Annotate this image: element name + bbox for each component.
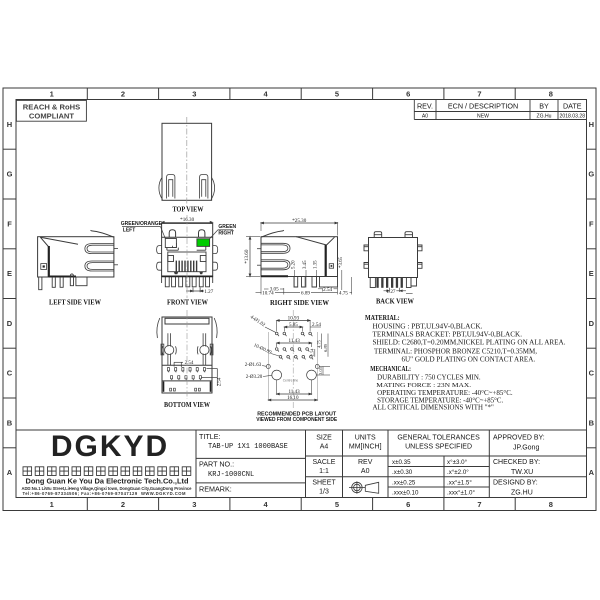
svg-text:.xx°±1.5°: .xx°±1.5° — [447, 480, 472, 487]
svg-text:x°±3.0°: x°±3.0° — [447, 459, 468, 466]
svg-text:2.54: 2.54 — [185, 361, 194, 366]
svg-text:ZG.HU: ZG.HU — [511, 490, 533, 497]
svg-text:2-Ø1.63: 2-Ø1.63 — [245, 363, 262, 368]
svg-text:3: 3 — [192, 89, 196, 98]
svg-text:11.43: 11.43 — [288, 389, 300, 395]
svg-text:16.10: 16.10 — [287, 395, 299, 401]
svg-text:RIGHT SIDE VIEW: RIGHT SIDE VIEW — [270, 298, 330, 307]
svg-text:A: A — [589, 468, 595, 477]
svg-text:NEW: NEW — [477, 113, 489, 119]
svg-text:TERMINAL: PHOSPHOR BRONZE C521: TERMINAL: PHOSPHOR BRONZE C5210,T=0.35MM… — [374, 349, 537, 356]
svg-text:5.20: 5.20 — [291, 260, 296, 269]
svg-text:DESIGND BY:: DESIGND BY: — [493, 480, 538, 487]
svg-text:6: 6 — [406, 500, 410, 509]
svg-text:Dong Guan Ke You Da Electronic: Dong Guan Ke You Da Electronic Tech.Co.,… — [26, 477, 189, 486]
svg-text:REV: REV — [358, 459, 373, 466]
svg-text:TITLE:: TITLE: — [199, 432, 221, 441]
svg-text:1:1: 1:1 — [319, 468, 329, 475]
svg-text:GREEN/ORANGE: GREEN/ORANGE — [121, 221, 163, 227]
svg-text:MECHANICAL:: MECHANICAL: — [370, 365, 411, 373]
svg-text:.xxx±0.10: .xxx±0.10 — [392, 490, 419, 497]
svg-text:ECN / DESCRIPTION: ECN / DESCRIPTION — [448, 102, 518, 111]
svg-text:Tel:+86-0769-87334506; Fax:+86: Tel:+86-0769-87334506; Fax:+86-0769-8704… — [23, 491, 187, 496]
svg-text:G: G — [588, 170, 594, 179]
svg-text:DGKYD: DGKYD — [51, 430, 169, 463]
svg-text:.xx±0.25: .xx±0.25 — [392, 480, 416, 487]
svg-text:*3.65: *3.65 — [339, 256, 344, 268]
svg-text:TOP VIEW: TOP VIEW — [173, 204, 205, 213]
svg-text:1: 1 — [50, 500, 54, 509]
svg-text:1.35: 1.35 — [314, 260, 319, 269]
svg-text:PART NO.:: PART NO.: — [199, 460, 234, 469]
svg-text:BACK VIEW: BACK VIEW — [376, 297, 415, 306]
svg-text:H: H — [7, 120, 12, 129]
svg-text:*25.30: *25.30 — [292, 218, 306, 224]
svg-text:G: G — [7, 170, 13, 179]
svg-text:F: F — [589, 220, 594, 229]
svg-text:1.27: 1.27 — [204, 289, 213, 295]
svg-text:SIZE: SIZE — [316, 435, 332, 442]
svg-text:SACLE: SACLE — [313, 459, 336, 466]
svg-text:8: 8 — [549, 500, 553, 509]
svg-text:x±0.35: x±0.35 — [392, 459, 411, 466]
svg-text:TAB-UP 1X1 1000BASE: TAB-UP 1X1 1000BASE — [208, 443, 288, 451]
svg-text:A4: A4 — [320, 444, 329, 451]
svg-text:REACH & RoHS: REACH & RoHS — [23, 103, 80, 112]
svg-text:TERMINALS BRACKET: PBT,UL94V-0: TERMINALS BRACKET: PBT,UL94V-0,BLACK. — [373, 332, 523, 339]
svg-text:COMPLIANT: COMPLIANT — [29, 112, 74, 121]
svg-text:2.54: 2.54 — [217, 377, 222, 386]
svg-text:OPERATING TEMPERATURE: -40°C~+: OPERATING TEMPERATURE: -40°C~+85°C. — [377, 390, 513, 397]
svg-text:.x°±2.0°: .x°±2.0° — [447, 469, 469, 476]
svg-text:MATING FORCE : 23N MAX.: MATING FORCE : 23N MAX. — [376, 383, 471, 389]
svg-text:D: D — [589, 319, 595, 328]
svg-text:FRONT VIEW: FRONT VIEW — [167, 297, 209, 306]
svg-text:MM[INCH]: MM[INCH] — [349, 444, 382, 451]
svg-text:JP.Gong: JP.Gong — [513, 445, 539, 452]
svg-text:.xxx°±1.0°: .xxx°±1.0° — [447, 490, 475, 497]
svg-text:H: H — [589, 120, 594, 129]
svg-text:APPROVED BY:: APPROVED BY: — [493, 435, 545, 442]
svg-text:.x±0.30: .x±0.30 — [392, 469, 413, 476]
svg-text:6.89: 6.89 — [323, 343, 328, 351]
svg-text:F: F — [7, 220, 12, 229]
svg-text:2: 2 — [121, 89, 125, 98]
svg-text:3: 3 — [192, 500, 196, 509]
svg-text:REMARK:: REMARK: — [199, 485, 232, 494]
svg-text:ADD:No.1 LiWu Street,LiHeng Vi: ADD:No.1 LiWu Street,LiHeng Village,Qing… — [22, 486, 193, 491]
svg-text:2: 2 — [121, 500, 125, 509]
svg-text:ALL CRITICAL DIMENSIONS WITH ": ALL CRITICAL DIMENSIONS WITH "*" — [373, 404, 495, 411]
svg-text:11.43: 11.43 — [289, 338, 301, 344]
svg-text:BY: BY — [539, 102, 549, 111]
svg-text:KRJ-1000CNL: KRJ-1000CNL — [208, 471, 254, 479]
svg-text:B: B — [7, 419, 13, 428]
svg-text:4.75: 4.75 — [316, 339, 321, 347]
svg-text:SHEET: SHEET — [312, 480, 336, 487]
svg-text:10.93: 10.93 — [288, 315, 300, 321]
svg-text:5.85: 5.85 — [289, 322, 298, 328]
svg-text:7: 7 — [477, 500, 481, 509]
svg-text:1/3: 1/3 — [319, 489, 329, 496]
svg-text:E: E — [589, 269, 594, 278]
svg-text:D: D — [7, 319, 13, 328]
svg-text:DATE: DATE — [563, 102, 582, 111]
svg-text:*13.60: *13.60 — [244, 249, 250, 263]
svg-text:7: 7 — [477, 89, 481, 98]
svg-text:5: 5 — [335, 500, 339, 509]
svg-text:2-Ø3.20: 2-Ø3.20 — [246, 375, 263, 380]
svg-text:2018.03.28: 2018.03.28 — [560, 113, 586, 119]
svg-text:8: 8 — [549, 89, 553, 98]
svg-text:1: 1 — [50, 89, 54, 98]
svg-text:6.89: 6.89 — [301, 291, 310, 297]
svg-text:REV.: REV. — [417, 102, 433, 111]
svg-text:B: B — [589, 419, 595, 428]
svg-text:A: A — [7, 468, 13, 477]
svg-text:DURABILITY : 750 CYCLES MIN.: DURABILITY : 750 CYCLES MIN. — [377, 375, 481, 382]
svg-text:4.75: 4.75 — [339, 291, 348, 297]
svg-text:RIGHT: RIGHT — [218, 230, 234, 236]
svg-text:GREEN: GREEN — [218, 224, 236, 230]
svg-text:TW.XU: TW.XU — [511, 469, 533, 476]
svg-text:*16.30: *16.30 — [180, 217, 194, 223]
svg-text:5: 5 — [335, 89, 339, 98]
svg-text:A0: A0 — [361, 468, 370, 475]
svg-text:MATERIAL:: MATERIAL: — [365, 314, 400, 322]
svg-text:LEFT SIDE VIEW: LEFT SIDE VIEW — [49, 297, 102, 306]
svg-text:SHIELD: C2680,T=0.20MM,NICKEL: SHIELD: C2680,T=0.20MM,NICKEL PLATING ON… — [373, 340, 566, 347]
svg-text:HOUSING : PBT,UL94V-0,BLACK.: HOUSING : PBT,UL94V-0,BLACK. — [373, 323, 483, 330]
svg-text:E: E — [7, 269, 12, 278]
svg-text:LEFT: LEFT — [123, 228, 136, 234]
svg-text:2.54: 2.54 — [312, 322, 321, 328]
svg-text:6: 6 — [406, 89, 410, 98]
svg-text:ZG.Hu: ZG.Hu — [536, 113, 551, 119]
svg-text:UNITS: UNITS — [355, 435, 376, 442]
svg-text:UNLESS SPECIFIED: UNLESS SPECIFIED — [405, 444, 472, 451]
svg-text:3.05: 3.05 — [318, 366, 323, 374]
svg-text:GENERAL TOLERANCES: GENERAL TOLERANCES — [397, 435, 480, 442]
svg-text:CHECKED BY:: CHECKED BY: — [493, 459, 540, 466]
svg-text:C: C — [589, 369, 595, 378]
svg-text:3.45: 3.45 — [303, 260, 308, 269]
svg-text:BOTTOM VIEW: BOTTOM VIEW — [164, 400, 210, 409]
svg-text:2.54: 2.54 — [310, 348, 315, 356]
svg-text:2.54: 2.54 — [323, 287, 332, 293]
svg-text:10.74: 10.74 — [262, 291, 274, 297]
svg-text:C: C — [7, 369, 13, 378]
svg-text:A0: A0 — [422, 113, 428, 119]
svg-text:1.27: 1.27 — [387, 289, 396, 295]
svg-text:VIEWED FROM COMPONENT SIDE: VIEWED FROM COMPONENT SIDE — [256, 417, 337, 423]
svg-text:Centre line: Centre line — [283, 379, 299, 383]
svg-text:6U" GOLD PLATING ON CONTACT AR: 6U" GOLD PLATING ON CONTACT AREA. — [402, 356, 536, 363]
